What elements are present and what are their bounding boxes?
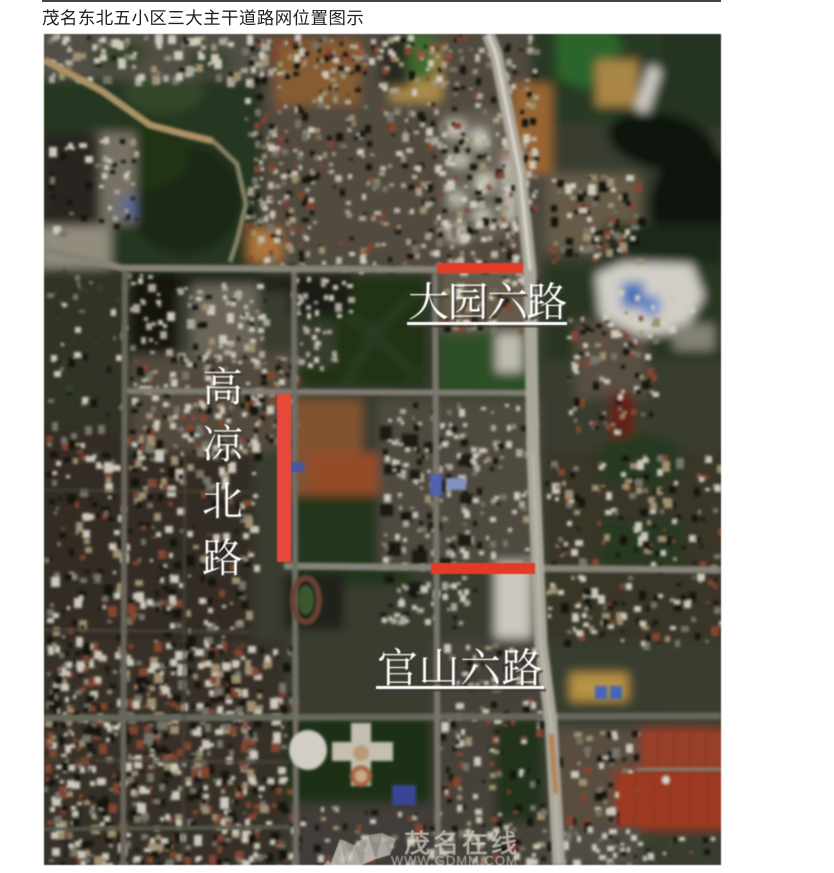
svg-text:WWW.GDMM.COM: WWW.GDMM.COM [391,853,518,865]
